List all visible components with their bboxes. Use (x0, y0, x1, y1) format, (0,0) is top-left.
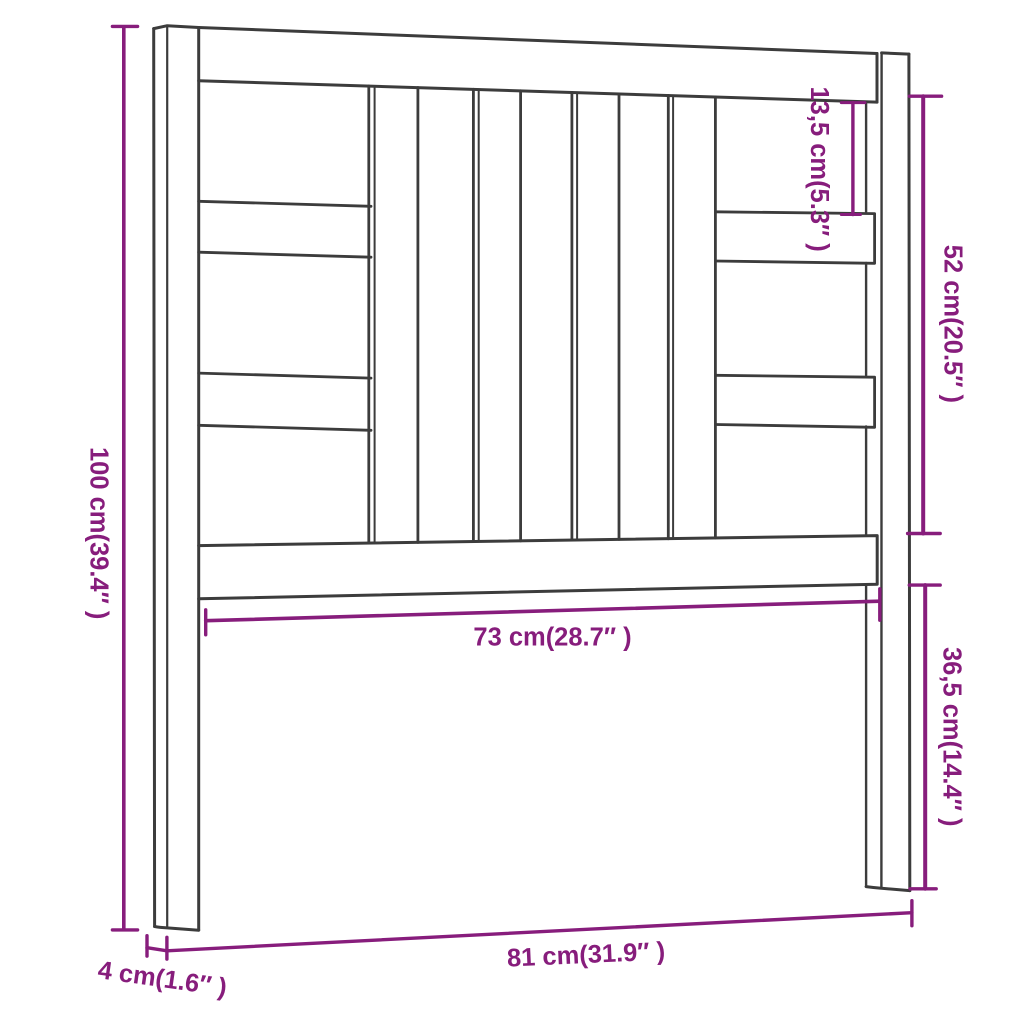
svg-text:73 cm(28.7″ ): 73 cm(28.7″ ) (473, 624, 631, 652)
svg-text:52 cm(20.5″ ): 52 cm(20.5″ ) (938, 245, 966, 403)
svg-text:100 cm(39.4″ ): 100 cm(39.4″ ) (85, 447, 113, 619)
svg-text:36,5 cm(14.4″ ): 36,5 cm(14.4″ ) (938, 647, 966, 826)
svg-text:13,5 cm(5.3″ ): 13,5 cm(5.3″ ) (805, 87, 833, 252)
